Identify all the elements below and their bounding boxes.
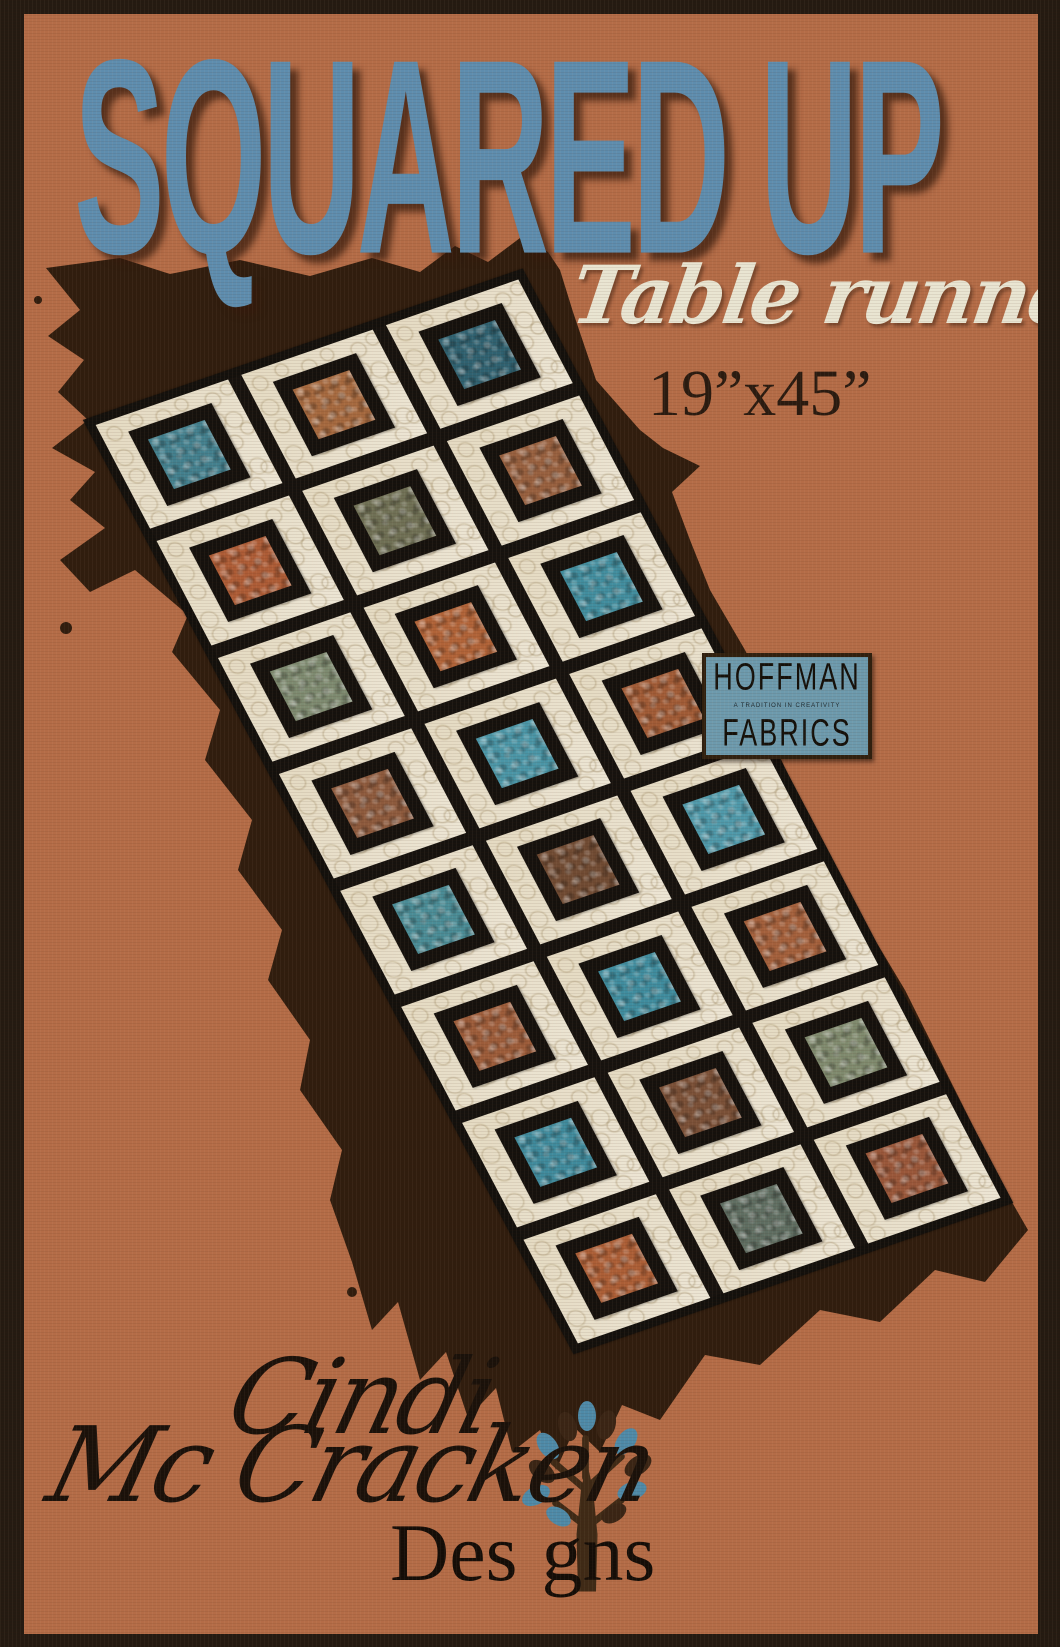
block-center-square (537, 835, 620, 904)
designs-right-part: gns (542, 1507, 656, 1598)
block-center-frame (640, 1051, 762, 1154)
block-center-frame (128, 403, 250, 506)
block-center-square (659, 1068, 742, 1137)
hoffman-fabrics-label: HOFFMAN A TRADITION IN CREATIVITY FABRIC… (702, 653, 872, 759)
block-center-square (453, 1001, 536, 1070)
block-center-frame (480, 419, 602, 522)
block-center-frame (273, 353, 395, 456)
pattern-subtitle: Table runner (566, 248, 1060, 342)
block-center-square (621, 669, 704, 738)
block-center-square (744, 901, 827, 970)
block-center-square (560, 552, 643, 621)
block-center-frame (418, 303, 540, 406)
block-center-frame (433, 984, 555, 1087)
block-center-square (514, 1118, 597, 1187)
block-center-square (721, 1184, 804, 1253)
block-center-square (331, 769, 414, 838)
hoffman-tagline-text: A TRADITION IN CREATIVITY (734, 703, 841, 709)
block-center-square (575, 1234, 658, 1303)
block-center-square (499, 436, 582, 505)
hoffman-name-text: HOFFMAN (713, 658, 860, 696)
block-center-frame (494, 1101, 616, 1204)
block-center-frame (456, 702, 578, 805)
block-center-square (683, 785, 766, 854)
block-center-frame (579, 934, 701, 1037)
block-center-frame (395, 585, 517, 688)
block-center-frame (701, 1167, 823, 1270)
block-center-square (866, 1134, 949, 1203)
block-center-frame (541, 535, 663, 638)
block-center-square (392, 885, 475, 954)
block-center-square (148, 420, 231, 489)
pattern-dimensions: 19”x45” (648, 356, 872, 432)
block-center-frame (250, 635, 372, 738)
block-center-frame (311, 752, 433, 855)
designs-left-part: Des (390, 1507, 518, 1598)
block-center-square (354, 486, 437, 555)
block-center-frame (189, 519, 311, 622)
block-center-square (805, 1018, 888, 1087)
block-center-square (209, 536, 292, 605)
block-center-frame (846, 1117, 968, 1220)
block-center-square (270, 652, 353, 721)
block-center-frame (724, 884, 846, 987)
block-center-square (415, 602, 498, 671)
block-center-frame (334, 469, 456, 572)
block-center-frame (785, 1001, 907, 1104)
block-center-square (598, 951, 681, 1020)
hoffman-fabrics-text: FABRICS (722, 714, 852, 752)
pattern-cover-poster: SQUARED UP Table runner 19”x45” HOFFMAN … (0, 0, 1060, 1647)
block-center-square (293, 370, 376, 439)
block-center-frame (518, 818, 640, 921)
block-center-square (476, 719, 559, 788)
designer-designs-word: Desgns (390, 1506, 655, 1600)
block-center-square (438, 320, 521, 389)
block-center-frame (556, 1217, 678, 1320)
block-center-frame (663, 768, 785, 871)
block-center-frame (372, 868, 494, 971)
